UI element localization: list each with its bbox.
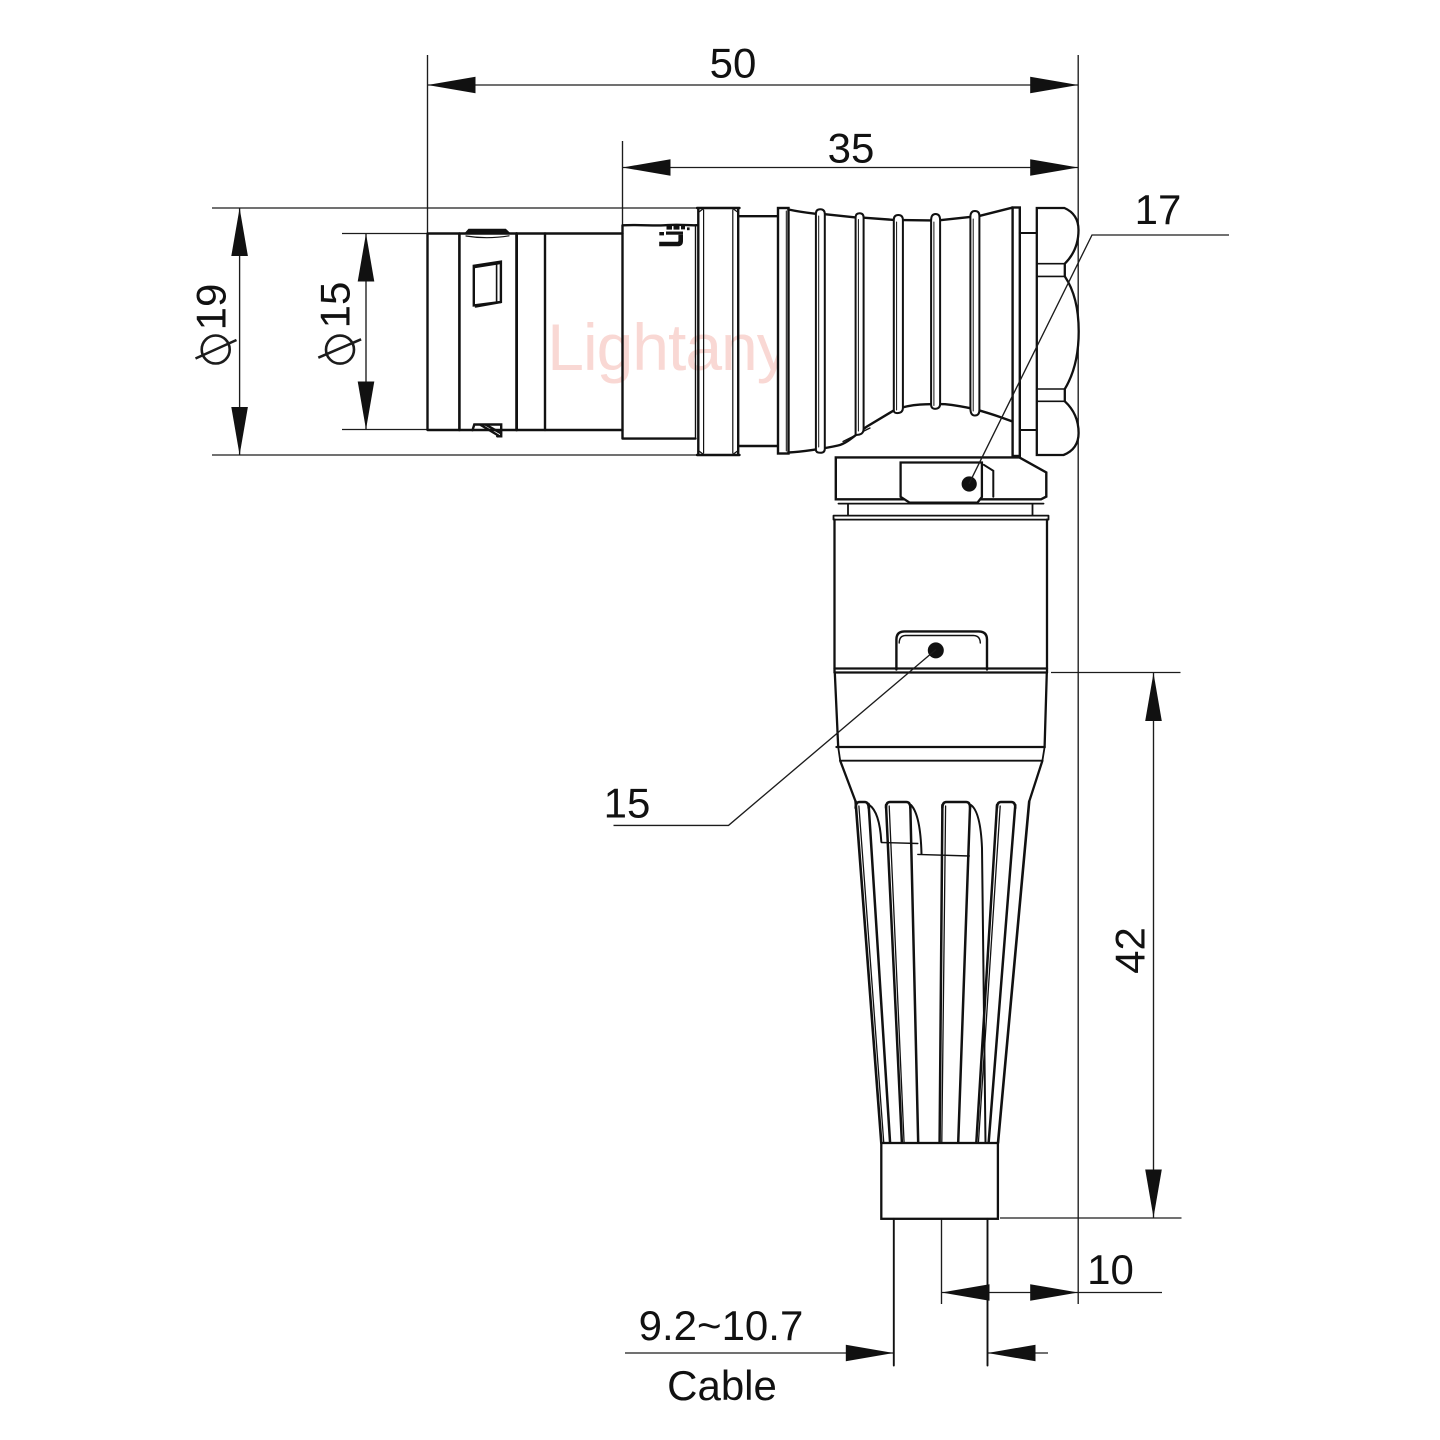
svg-text:15: 15 [312, 282, 359, 329]
svg-text:Lightany: Lightany [547, 310, 790, 384]
svg-text:42: 42 [1107, 927, 1154, 974]
svg-text:35: 35 [828, 125, 875, 172]
svg-text:15: 15 [604, 780, 651, 827]
svg-text:Cable: Cable [667, 1362, 777, 1409]
svg-text:10: 10 [1087, 1246, 1134, 1293]
svg-text:9.2~10.7: 9.2~10.7 [639, 1302, 804, 1349]
svg-text:50: 50 [710, 40, 757, 87]
svg-text:17: 17 [1135, 186, 1182, 233]
svg-text:19: 19 [188, 284, 235, 331]
